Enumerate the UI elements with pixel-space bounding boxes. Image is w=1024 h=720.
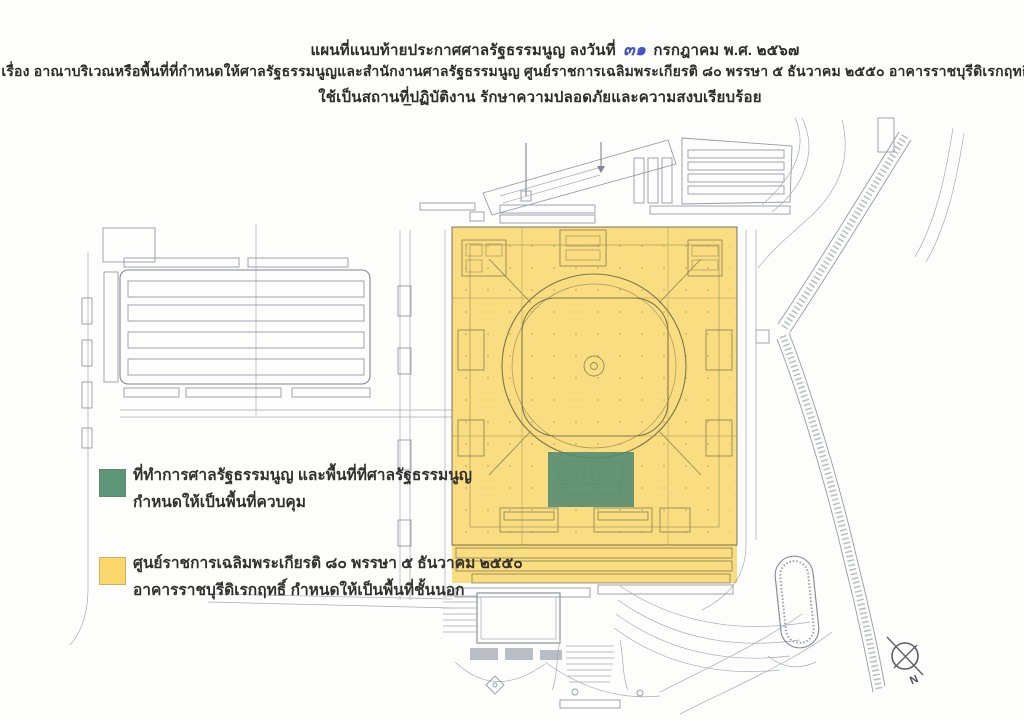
west-boundary (70, 252, 92, 645)
compass-icon: N (887, 637, 923, 687)
document-title-line1: แผนที่แนบท้ายประกาศศาลรัฐธรรมนูญ ลงวันที… (310, 36, 799, 63)
document-subject-line: เรื่อง อาณาบริเวณหรือพื้นที่ที่กำหนดให้ศ… (1, 61, 1024, 83)
outer-zone-swatch (99, 557, 126, 585)
header-dash: – (403, 96, 412, 114)
outer-zone-overlay (452, 227, 737, 583)
compass-north-label: N (908, 673, 920, 687)
document-purpose-line: ใช้เป็นสถานที่ปฏิบัติงาน รักษาความปลอดภั… (318, 85, 761, 109)
handwritten-date: ๓๑ (620, 40, 649, 59)
north-parking-lot (634, 138, 792, 214)
title-prefix: แผนที่แนบท้ายประกาศศาลรัฐธรรมนูญ ลงวันที… (310, 42, 615, 59)
outer-zone-label: ศูนย์ราชการเฉลิมพระเกียรติ ๘๐ พรรษา ๕ ธั… (133, 550, 473, 604)
angled-walkway (756, 132, 911, 692)
central-corridor (398, 230, 445, 600)
north-ramp-structure (420, 140, 676, 223)
controlled-zone-swatch (99, 469, 126, 497)
title-suffix: กรกฎาคม พ.ศ. ๒๕๖๗ (653, 42, 799, 59)
south-plaza (443, 585, 832, 714)
controlled-zone-overlay (548, 452, 634, 507)
southeast-garden (773, 554, 820, 649)
controlled-zone-label: ที่ทำการศาลรัฐธรรมนูญ และพื้นที่ที่ศาลรั… (133, 462, 473, 516)
grid-structure (103, 228, 155, 262)
